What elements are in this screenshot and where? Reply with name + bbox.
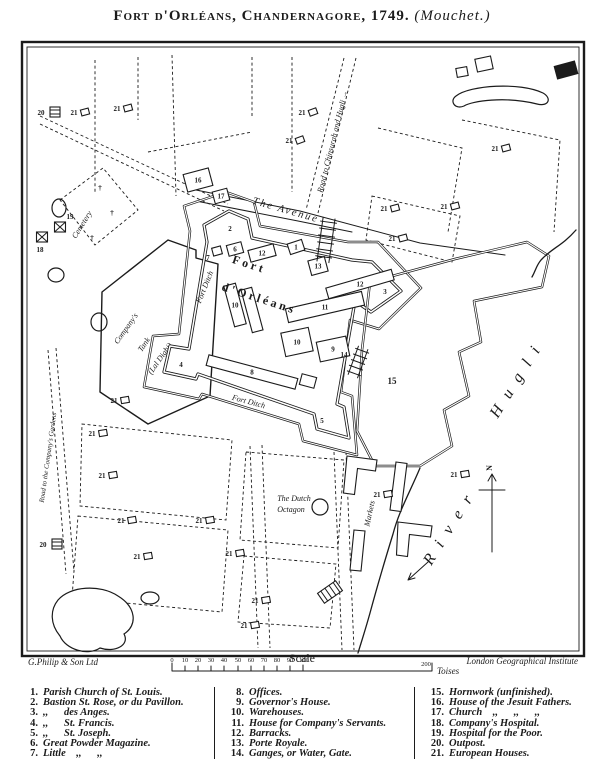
svg-text:21: 21 (389, 235, 397, 243)
north-arrow-icon: N (479, 465, 505, 552)
site-number-hornwork: 15 (388, 376, 398, 386)
grave-cross-icon: † (110, 209, 114, 217)
southwest-pond (52, 588, 133, 651)
svg-text:10: 10 (182, 657, 189, 664)
svg-text:21: 21 (374, 491, 382, 499)
svg-text:8: 8 (250, 369, 254, 377)
shore-hatched-building (318, 581, 343, 603)
legend-item: 7Little ,, ,, (18, 749, 214, 759)
svg-text:1: 1 (294, 244, 298, 252)
river-shoreline (358, 230, 576, 653)
svg-text:12: 12 (357, 281, 365, 289)
svg-text:30: 30 (208, 657, 215, 664)
grave-cross-icon: † (98, 184, 102, 192)
publisher-imprint: G.Philip & Son Ltd (28, 657, 99, 667)
legend-item: 21European Houses. (424, 749, 590, 759)
octagon-label-2: Octagon (277, 505, 305, 514)
svg-text:11: 11 (322, 304, 329, 312)
svg-text:10: 10 (232, 302, 240, 310)
svg-text:21: 21 (226, 550, 234, 558)
svg-text:13: 13 (315, 263, 323, 271)
svg-text:21: 21 (134, 553, 142, 561)
market-buildings (344, 456, 433, 571)
river-label-2: Hugli (486, 334, 549, 421)
svg-text:40: 40 (221, 657, 228, 664)
svg-text:5: 5 (320, 417, 324, 425)
legend: 1Parish Church of St. Louis. 2Bastion St… (18, 687, 590, 759)
markets-label: Markets (362, 500, 376, 528)
svg-text:17: 17 (218, 193, 226, 201)
fort-ditch-west-label: Fort Ditch (194, 270, 215, 306)
svg-text:20: 20 (40, 541, 48, 549)
svg-text:19: 19 (67, 213, 75, 221)
svg-text:21: 21 (441, 203, 449, 211)
svg-text:14: 14 (341, 351, 349, 359)
svg-text:70: 70 (261, 657, 268, 664)
svg-text:3: 3 (383, 288, 387, 296)
misc-buildings (456, 56, 579, 80)
svg-text:2: 2 (228, 225, 232, 233)
road-chinsurah-label: Road to Chinsurah and Hugli → (315, 89, 349, 194)
legend-item: 14Ganges, or Water, Gate. (224, 749, 414, 759)
historical-map-canvas: Company's Tank (Lal Dighi) Cemetery † † … (0, 0, 604, 784)
grave-cross-icon: † (90, 234, 94, 242)
svg-text:7: 7 (206, 254, 210, 262)
svg-text:21: 21 (118, 517, 126, 525)
svg-text:21: 21 (241, 622, 249, 630)
svg-text:21: 21 (114, 105, 122, 113)
svg-text:4: 4 (179, 361, 183, 369)
svg-text:0: 0 (170, 657, 173, 664)
scale-far-tick: 200 (421, 661, 431, 668)
road-gardens-label: Road to the Company's Gardens (38, 412, 59, 504)
svg-text:21: 21 (196, 517, 204, 525)
svg-text:80: 80 (274, 657, 281, 664)
svg-text:20: 20 (195, 657, 202, 664)
scale-unit: Toises (437, 666, 460, 676)
north-label: N (485, 465, 494, 471)
svg-text:50: 50 (235, 657, 242, 664)
svg-text:21: 21 (299, 109, 307, 117)
map-content: Company's Tank (Lal Dighi) Cemetery † † … (37, 55, 579, 653)
legend-column-3: 15Hornwork (unfinished). 16House of the … (414, 687, 590, 759)
tank-label-1: Company's (112, 311, 140, 345)
svg-text:60: 60 (248, 657, 255, 664)
svg-text:21: 21 (492, 145, 500, 153)
svg-text:21: 21 (71, 109, 79, 117)
legend-column-1: 1Parish Church of St. Louis. 2Bastion St… (18, 687, 214, 759)
crescent-pond (453, 86, 548, 107)
svg-text:9: 9 (331, 346, 335, 354)
cemetery: Cemetery † † † (60, 168, 138, 245)
legend-column-2: 8Offices. 9Governor's House. 10Warehouse… (214, 687, 414, 759)
dutch-octagon: The Dutch Octagon (277, 494, 328, 515)
fort-ditch (144, 192, 421, 455)
octagon-label-1: The Dutch (277, 494, 311, 503)
svg-text:12: 12 (259, 250, 267, 258)
ponds (48, 86, 548, 651)
svg-text:18: 18 (37, 246, 45, 254)
avenue-label: The Avenue (251, 196, 320, 225)
svg-text:21: 21 (286, 137, 294, 145)
svg-text:21: 21 (451, 471, 459, 479)
svg-text:20: 20 (38, 109, 46, 117)
svg-text:16: 16 (195, 177, 203, 185)
svg-text:100: 100 (299, 657, 309, 664)
svg-text:21: 21 (111, 397, 119, 405)
institute-imprint: London Geographical Institute (466, 656, 579, 666)
svg-text:90: 90 (287, 657, 294, 664)
scale-bar: Scale 0 10 20 30 40 50 60 70 80 90 100 2… (170, 651, 459, 676)
map-sheet: { "title": { "main": "Fort d'Orléans, Ch… (0, 0, 604, 784)
svg-text:10: 10 (294, 339, 302, 347)
svg-text:21: 21 (252, 597, 260, 605)
svg-text:21: 21 (99, 472, 107, 480)
svg-text:21: 21 (381, 205, 389, 213)
water-gate-bridge (346, 346, 369, 379)
svg-text:21: 21 (89, 430, 97, 438)
